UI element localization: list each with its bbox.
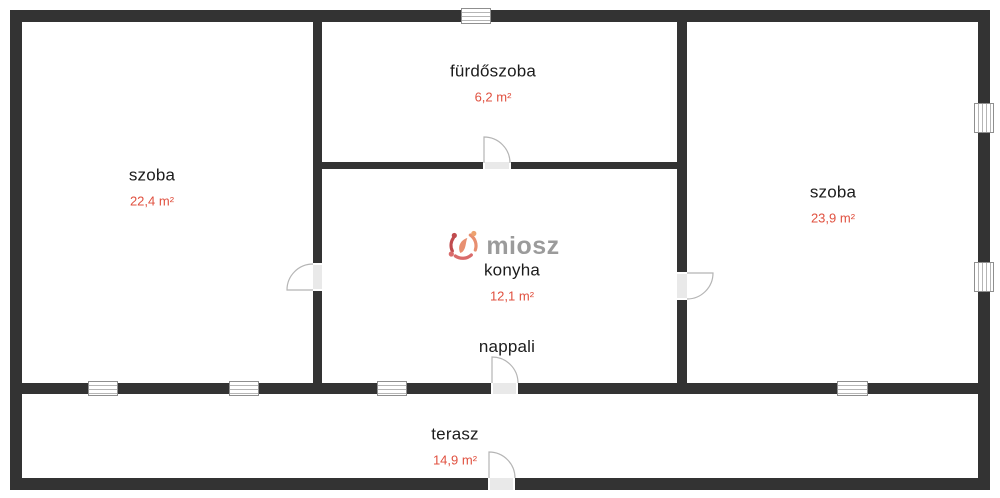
room-label-terasz: terasz 14,9 m² [431,425,479,468]
wall-exterior-left [10,10,22,490]
door-arc-room-right [687,273,713,299]
room-label-konyha: konyha 12,1 m² [484,261,540,304]
room-label-nappali: nappali [479,337,535,357]
door-gap-bathroom [483,162,511,169]
window-bottom-1 [88,381,118,396]
wall-exterior-top [10,10,990,22]
room-area: 23,9 m² [810,211,856,226]
room-name: nappali [479,337,535,357]
watermark-logo: miosz [446,229,559,263]
window-right-upper [974,103,994,133]
miosz-logo-text: miosz [486,234,559,259]
door-arc-nappali [492,357,518,383]
room-label-szoba-left: szoba 22,4 m² [129,166,175,209]
window-bottom-3 [377,381,407,396]
floor-plan: szoba 22,4 m² fürdőszoba 6,2 m² konyha 1… [0,0,1000,498]
room-area: 22,4 m² [129,194,175,209]
room-label-szoba-right: szoba 23,9 m² [810,183,856,226]
door-arc-room-left [287,264,313,290]
miosz-logo-icon [446,229,480,263]
window-right-lower [974,262,994,292]
room-label-furdoszoba: fürdőszoba 6,2 m² [450,62,536,105]
window-bottom-2 [229,381,259,396]
wall-exterior-right [978,10,990,490]
door-gap-room-right [677,272,687,300]
door-gap-terasz [488,478,515,490]
room-name: konyha [484,261,540,281]
window-bottom-4 [837,381,868,396]
room-area: 12,1 m² [484,289,540,304]
window-top-bathroom [461,8,491,24]
room-area: 6,2 m² [450,90,536,105]
door-gap-room-left [313,263,322,291]
room-name: szoba [810,183,856,203]
room-name: szoba [129,166,175,186]
room-name: fürdőszoba [450,62,536,82]
wall-interior-right [677,22,687,383]
door-gap-nappali [491,383,518,394]
door-arc-terasz [489,452,515,478]
room-name: terasz [431,425,479,445]
wall-interior-left [313,22,322,383]
room-area: 14,9 m² [431,453,479,468]
door-arc-bathroom [484,137,510,163]
